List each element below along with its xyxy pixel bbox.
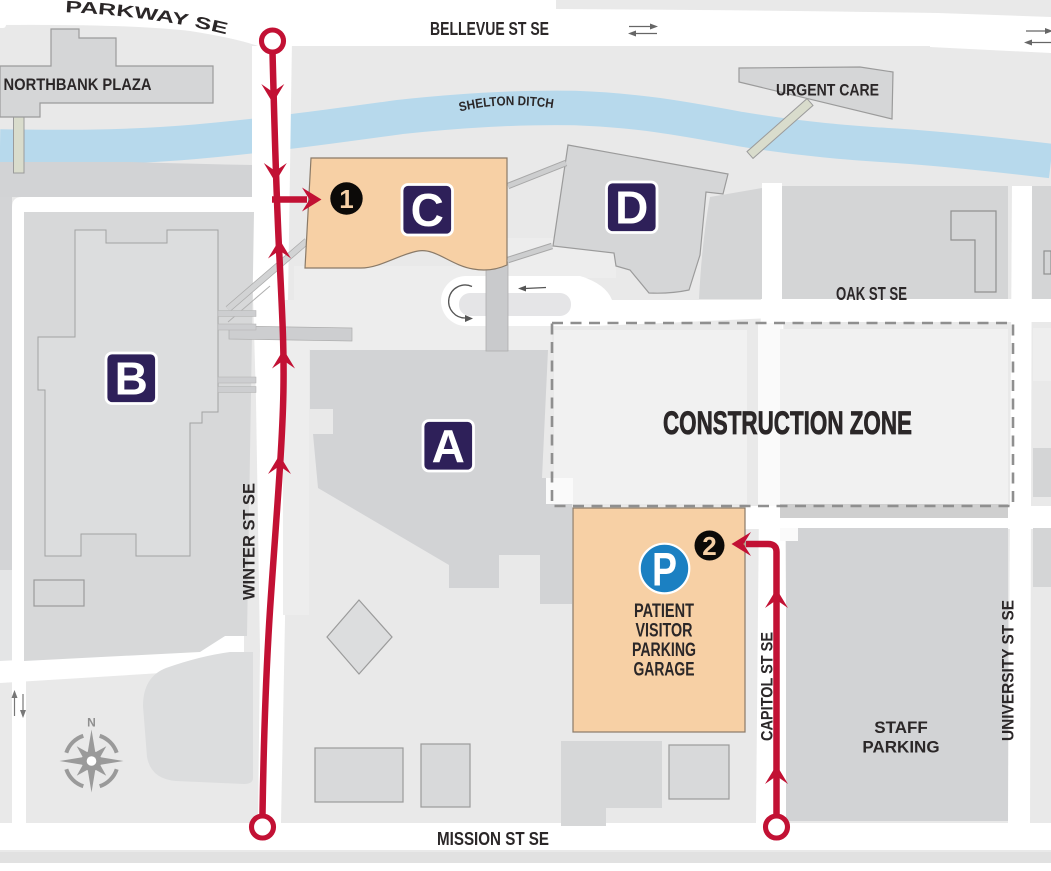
svg-text:N: N [87, 716, 96, 730]
svg-text:A: A [432, 420, 465, 472]
svg-text:UNIVERSITY ST SE: UNIVERSITY ST SE [999, 600, 1018, 741]
svg-text:1: 1 [339, 184, 353, 214]
svg-text:PARKING: PARKING [632, 640, 696, 661]
svg-text:PARKING: PARKING [862, 738, 939, 757]
svg-text:WINTER ST SE: WINTER ST SE [240, 483, 259, 600]
svg-text:PATIENT: PATIENT [634, 601, 694, 622]
svg-text:OAK ST SE: OAK ST SE [836, 284, 907, 304]
svg-text:MISSION ST SE: MISSION ST SE [437, 828, 549, 849]
svg-text:C: C [411, 184, 444, 236]
svg-text:P: P [652, 543, 677, 596]
svg-text:D: D [615, 182, 648, 234]
svg-text:2: 2 [702, 531, 716, 561]
svg-text:URGENT CARE: URGENT CARE [776, 81, 879, 100]
svg-text:CAPITOL ST SE: CAPITOL ST SE [759, 632, 777, 741]
svg-text:VISITOR: VISITOR [636, 621, 693, 642]
svg-text:GARAGE: GARAGE [634, 660, 695, 681]
svg-text:CONSTRUCTION ZONE: CONSTRUCTION ZONE [663, 405, 912, 441]
svg-text:BELLEVUE ST SE: BELLEVUE ST SE [430, 19, 549, 39]
svg-text:B: B [115, 353, 148, 405]
svg-text:STAFF: STAFF [874, 718, 928, 737]
svg-text:NORTHBANK PLAZA: NORTHBANK PLAZA [4, 75, 152, 94]
